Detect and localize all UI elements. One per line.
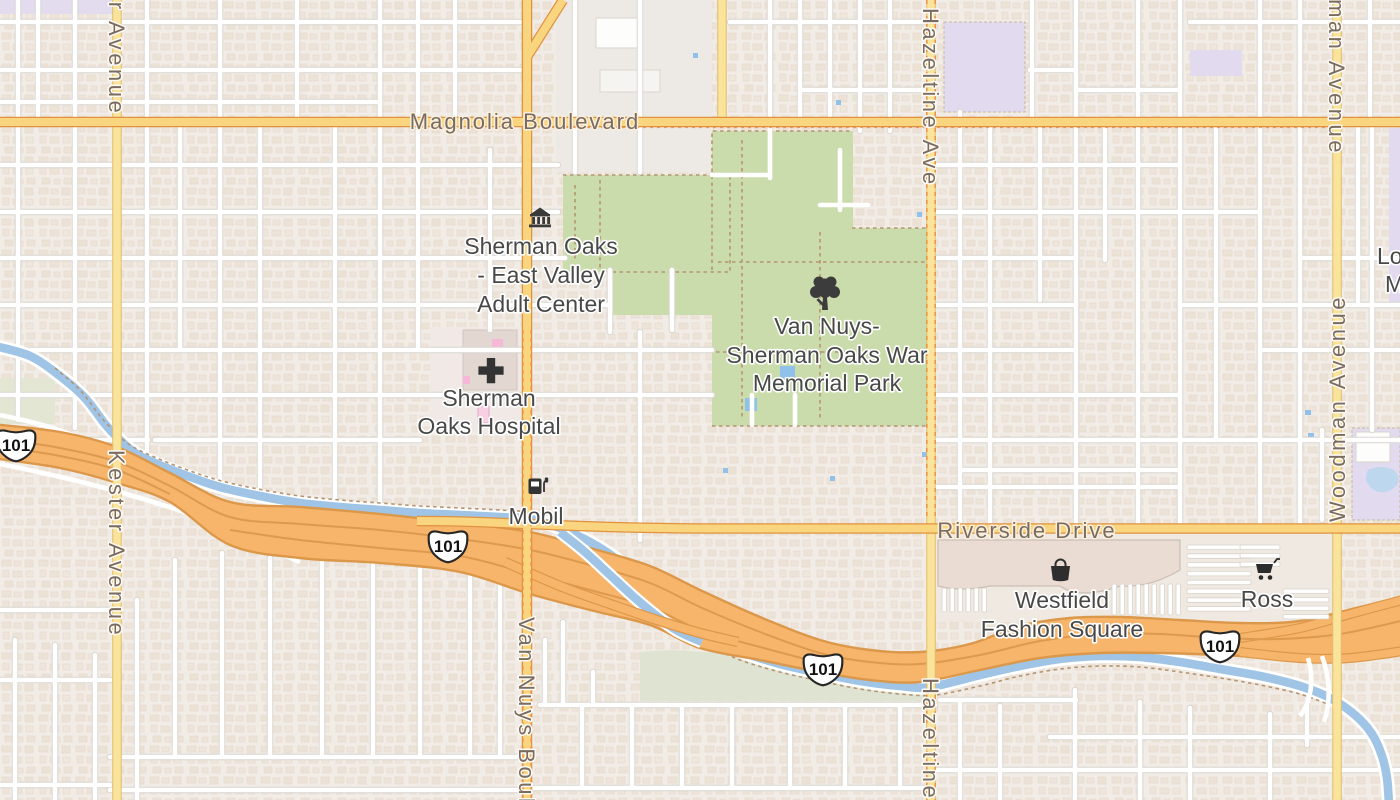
svg-text:101: 101 <box>809 660 837 679</box>
svg-text:Hazeltine Ave: Hazeltine Ave <box>918 8 943 188</box>
svg-text:Woodman Avenue: Woodman Avenue <box>1324 0 1349 156</box>
svg-text:Sherman: Sherman <box>442 385 535 411</box>
svg-text:Westfield: Westfield <box>1015 587 1109 613</box>
svg-text:Sherman Oaks: Sherman Oaks <box>464 233 617 259</box>
svg-text:Fashion Square: Fashion Square <box>981 616 1143 642</box>
svg-text:Riverside Drive: Riverside Drive <box>937 518 1116 543</box>
svg-text:Woodman Avenue: Woodman Avenue <box>1325 294 1350 522</box>
svg-text:Sherman Oaks War: Sherman Oaks War <box>726 342 927 368</box>
svg-text:Van Nuys Boulev: Van Nuys Boulev <box>514 617 539 800</box>
svg-text:Oaks Hospital: Oaks Hospital <box>417 413 560 439</box>
svg-text:Magnolia Boulevard: Magnolia Boulevard <box>410 109 640 134</box>
svg-text:Kester Avenue: Kester Avenue <box>104 450 129 638</box>
svg-text:Mobil: Mobil <box>509 503 564 529</box>
svg-text:101: 101 <box>1206 637 1234 656</box>
svg-text:Memorial Park: Memorial Park <box>753 370 902 396</box>
svg-text:101: 101 <box>434 537 462 556</box>
svg-text:101: 101 <box>2 436 30 455</box>
svg-text:Adult Center: Adult Center <box>477 291 605 317</box>
svg-text:Van Nuys-: Van Nuys- <box>774 313 880 339</box>
svg-text:M: M <box>1385 271 1400 297</box>
svg-text:er Avenue: er Avenue <box>104 0 129 116</box>
svg-text:- East Valley: - East Valley <box>477 262 605 288</box>
svg-text:Ross: Ross <box>1241 586 1293 612</box>
svg-text:Hazeltine: Hazeltine <box>918 678 943 800</box>
svg-text:Lo: Lo <box>1377 243 1400 269</box>
